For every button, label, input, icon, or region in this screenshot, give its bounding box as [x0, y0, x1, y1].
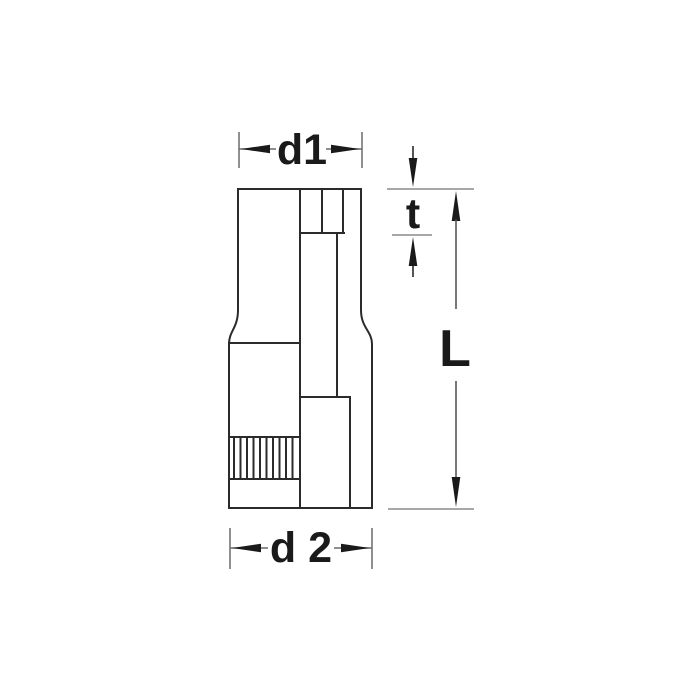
length-arrow-down-icon — [452, 477, 461, 507]
knurl-hatching — [234, 437, 293, 479]
d1-arrow-left-icon — [241, 145, 270, 154]
t-label: t — [406, 190, 420, 238]
socket-dimension-diagram: d1 t L d 2 — [0, 0, 700, 700]
socket-outline — [229, 189, 372, 508]
d1-arrow-right-icon — [331, 145, 360, 154]
length-arrow-up-icon — [452, 191, 461, 221]
d2-label: d 2 — [270, 524, 332, 572]
d2-dimension: d 2 — [230, 524, 372, 572]
t-arrow-down-icon — [409, 158, 418, 187]
length-dimension: L — [388, 191, 474, 509]
d1-label: d1 — [277, 126, 327, 174]
d2-arrow-left-icon — [232, 544, 261, 553]
t-dimension: t — [387, 146, 474, 277]
drawing-canvas: d1 t L d 2 — [0, 0, 700, 700]
t-arrow-up-icon — [409, 237, 418, 266]
d1-dimension: d1 — [239, 126, 362, 174]
length-label: L — [439, 320, 471, 378]
d2-arrow-right-icon — [341, 544, 370, 553]
